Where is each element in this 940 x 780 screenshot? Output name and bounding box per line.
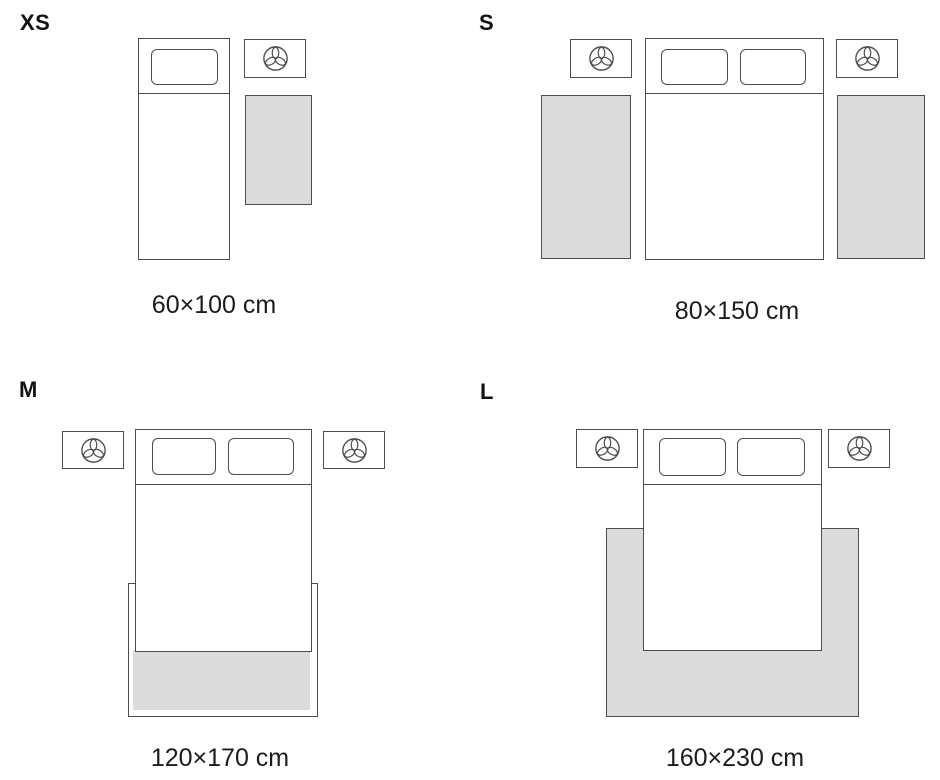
rug-m-visible-area: [133, 650, 310, 710]
lamp-icon: [78, 435, 109, 466]
size-label-xs: XS: [20, 10, 50, 36]
rug-s-left: [541, 95, 631, 259]
lamp-icon: [339, 435, 370, 466]
nightstand-left: [62, 431, 124, 469]
bed-double: [135, 429, 312, 652]
size-caption-s: 80×150 cm: [627, 297, 847, 326]
pillow-left: [152, 438, 216, 475]
rug-size-guide: XS 60×100 cm S: [0, 0, 940, 780]
pillow: [151, 49, 218, 85]
nightstand-right: [828, 429, 890, 468]
nightstand-left: [570, 39, 632, 78]
lamp-icon: [844, 433, 875, 464]
lamp-icon: [852, 43, 883, 74]
size-label-l: L: [480, 379, 494, 405]
nightstand-right: [323, 431, 385, 469]
size-label-s: S: [479, 10, 494, 36]
size-label-m: M: [19, 377, 38, 403]
nightstand-right: [836, 39, 898, 78]
size-caption-m: 120×170 cm: [110, 744, 330, 773]
lamp-icon: [260, 43, 291, 74]
lamp-icon: [592, 433, 623, 464]
bed-single: [138, 38, 230, 260]
pillow-left: [659, 438, 726, 476]
pillow-left: [661, 49, 728, 85]
lamp-icon: [586, 43, 617, 74]
rug-s-right: [837, 95, 925, 259]
size-caption-l: 160×230 cm: [625, 744, 845, 773]
pillow-right: [737, 438, 805, 476]
bed-double: [645, 38, 824, 260]
bed-double: [643, 429, 822, 651]
size-caption-xs: 60×100 cm: [104, 291, 324, 320]
nightstand: [244, 39, 306, 78]
pillow-right: [228, 438, 294, 475]
rug-xs: [245, 95, 312, 205]
pillow-right: [740, 49, 806, 85]
nightstand-left: [576, 429, 638, 468]
